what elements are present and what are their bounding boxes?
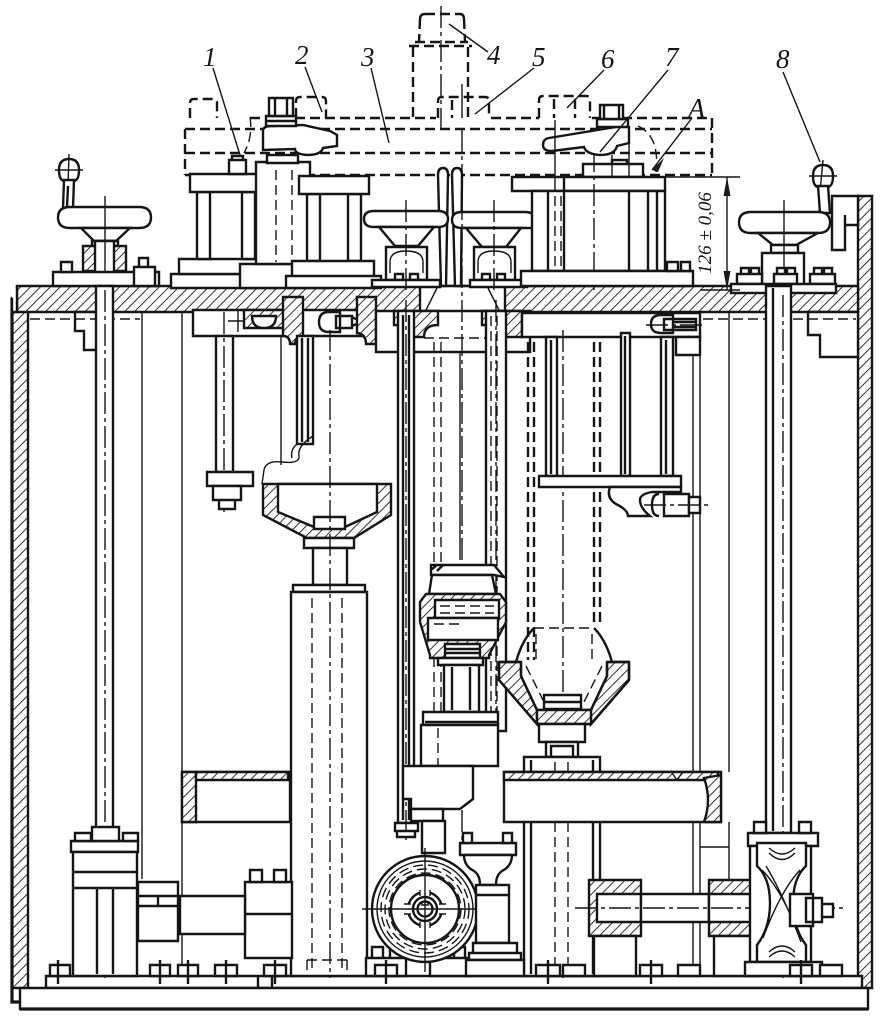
svg-text:4: 4 <box>487 40 501 70</box>
svg-text:7: 7 <box>665 42 680 72</box>
svg-text:8: 8 <box>776 44 790 74</box>
svg-text:5: 5 <box>532 42 546 72</box>
svg-text:A: A <box>686 94 706 125</box>
svg-text:3: 3 <box>360 42 375 72</box>
svg-text:6: 6 <box>601 44 615 74</box>
svg-text:126 ± 0,06: 126 ± 0,06 <box>695 192 716 274</box>
svg-text:2: 2 <box>295 40 309 70</box>
svg-text:1: 1 <box>203 42 217 72</box>
